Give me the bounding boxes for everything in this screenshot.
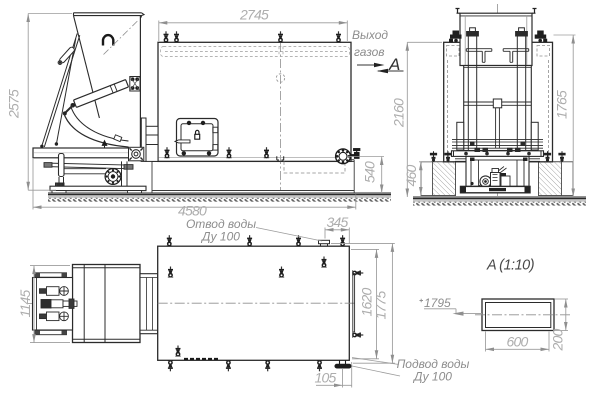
svg-text:1775: 1775 bbox=[373, 291, 389, 320]
svg-text:2745: 2745 bbox=[239, 7, 269, 23]
svg-text:2160: 2160 bbox=[391, 98, 407, 128]
svg-text:600: 600 bbox=[507, 334, 529, 350]
svg-text:200: 200 bbox=[550, 329, 566, 352]
svg-text:2575: 2575 bbox=[6, 89, 22, 119]
svg-text:540: 540 bbox=[362, 161, 378, 183]
svg-text:A (1:10): A (1:10) bbox=[486, 258, 534, 274]
svg-text:1795: 1795 bbox=[424, 296, 451, 310]
svg-text:Ду 100: Ду 100 bbox=[200, 230, 240, 244]
svg-text:газов: газов bbox=[354, 45, 385, 59]
svg-text:Ду 100: Ду 100 bbox=[412, 370, 452, 384]
svg-text:460: 460 bbox=[403, 165, 419, 187]
svg-text:Выход: Выход bbox=[352, 28, 388, 42]
svg-text:105: 105 bbox=[315, 370, 337, 386]
svg-text:1145: 1145 bbox=[17, 290, 33, 318]
svg-text:1765: 1765 bbox=[554, 90, 570, 119]
svg-text:345: 345 bbox=[327, 214, 349, 230]
